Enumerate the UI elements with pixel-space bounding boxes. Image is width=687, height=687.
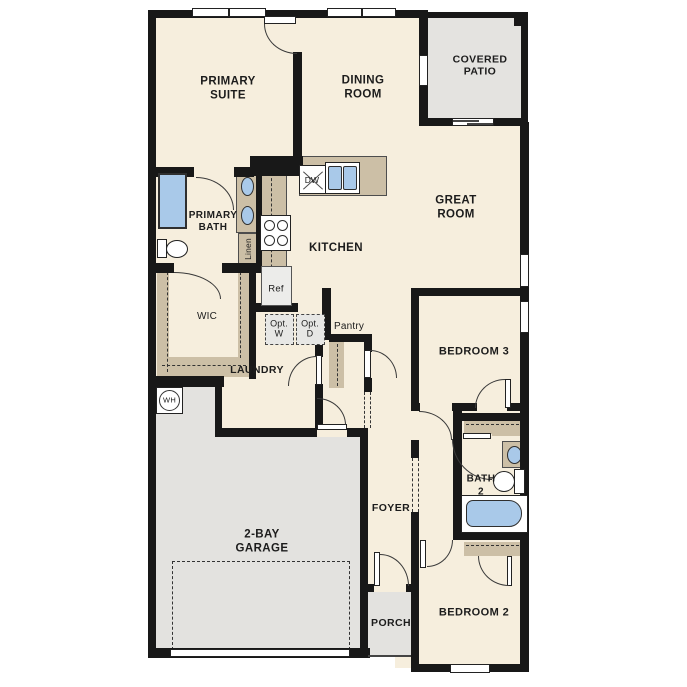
wall [520,122,529,672]
wall [424,12,526,18]
toilet-tank [514,469,525,494]
dw-label: DW [305,175,320,185]
porch-edge [366,655,414,657]
toilet-bowl [493,471,515,492]
cased-opening-dash [370,392,371,428]
wall [411,288,528,296]
room-label-bedroom-3: BEDROOM 3 [439,346,509,359]
wall [364,378,372,392]
stove-burner [264,220,275,231]
room-label-wic: WIC [197,311,217,323]
room-label-bedroom-2: BEDROOM 2 [439,607,509,620]
wall [329,334,367,342]
wall [234,167,254,177]
room-label-covered-patio: COVERED PATIO [453,54,508,79]
bathtub [466,500,522,527]
door-leaf [264,16,296,24]
floor-plan: PRIMARY SUITE DINING ROOM COVERED PATIO … [0,0,687,687]
wall [148,263,174,273]
wall [360,428,368,658]
room-label-porch: PORCH [371,617,411,629]
garage-door [170,649,350,657]
room-label-primary-bath: PRIMARY BATH [189,210,238,234]
opening [420,403,452,411]
room-label-primary-suite: PRIMARY SUITE [200,75,255,102]
window-mullion [361,8,363,17]
room-label-bath-2: BATH 2 [467,474,496,499]
stove [260,215,291,251]
wall [521,14,528,122]
kitchen-sink-basin [343,166,357,190]
toilet-bowl [166,240,188,258]
door-leaf [505,379,511,408]
ref-label: Ref [268,283,283,294]
driveway-dashed-outline [172,561,350,650]
room-label-kitchen: KITCHEN [309,242,363,256]
bedroom3-closet-dash [466,424,524,425]
primary-shower [158,173,187,229]
cased-opening-dash [418,458,419,512]
cased-opening-dash [412,458,413,512]
cased-opening-dash [364,392,365,428]
wall [411,512,419,672]
stove-burner [277,235,288,246]
opt-d-label: Opt. D [301,319,319,340]
sliding-door-line [467,123,493,125]
wall [249,263,256,379]
room-label-foyer: FOYER [372,502,410,514]
wh-label: WH [163,396,176,405]
sliding-door-line [453,120,479,122]
wall [148,10,156,658]
window [520,254,529,287]
opt-w-label: Opt. W [270,319,288,340]
window [520,301,529,333]
wall [215,383,222,433]
wall [462,413,528,421]
room-label-dining-room: DINING ROOM [342,74,385,101]
wic-dash-left [167,272,168,372]
room-label-garage: 2-BAY GARAGE [236,528,289,555]
wic-dash-right [240,272,241,358]
wall [411,440,419,458]
window-mullion [228,8,230,17]
stove-burner [264,235,275,246]
kitchen-sink-basin [328,166,342,190]
vanity-sink-2 [241,206,254,225]
opening [194,167,234,177]
pantry-dash [337,344,338,386]
vanity-sink-1 [241,177,254,196]
room-label-laundry: LAUNDRY [230,364,284,376]
linen-label: Linen [243,238,253,260]
bedroom2-closet-dash [466,545,524,546]
room-label-great-room: GREAT ROOM [435,194,476,221]
room-label-pantry: Pantry [334,321,364,333]
wall [148,376,224,387]
window [450,664,490,673]
window [419,55,428,86]
door-leaf [420,540,426,568]
wall [411,288,419,411]
stove-burner [277,220,288,231]
